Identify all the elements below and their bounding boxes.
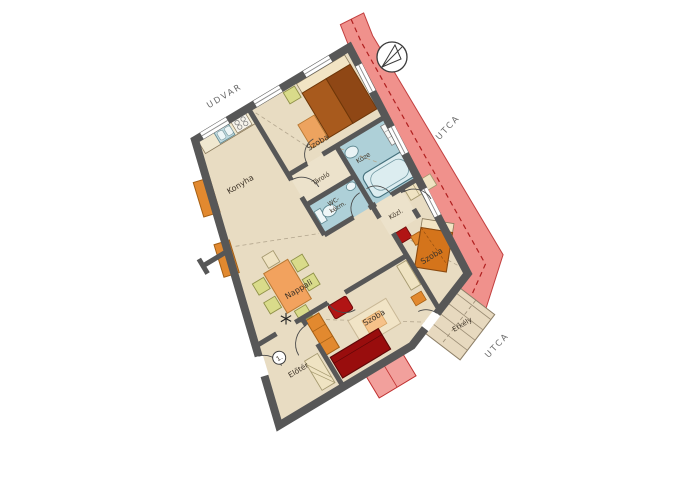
north-compass [377, 42, 407, 72]
label-utca-right: UTCA [434, 113, 462, 142]
apartment-plan: 1. Konyha Szoba Tároló WC- kézm. Köze Kö… [117, 0, 576, 471]
label-udvar: UDVAR [205, 82, 244, 111]
floor-plan-page: 1. Konyha Szoba Tároló WC- kézm. Köze Kö… [0, 0, 700, 500]
floor-plan-drawing: 1. Konyha Szoba Tároló WC- kézm. Köze Kö… [0, 0, 700, 500]
label-utca-bottom: UTCA [483, 331, 511, 360]
